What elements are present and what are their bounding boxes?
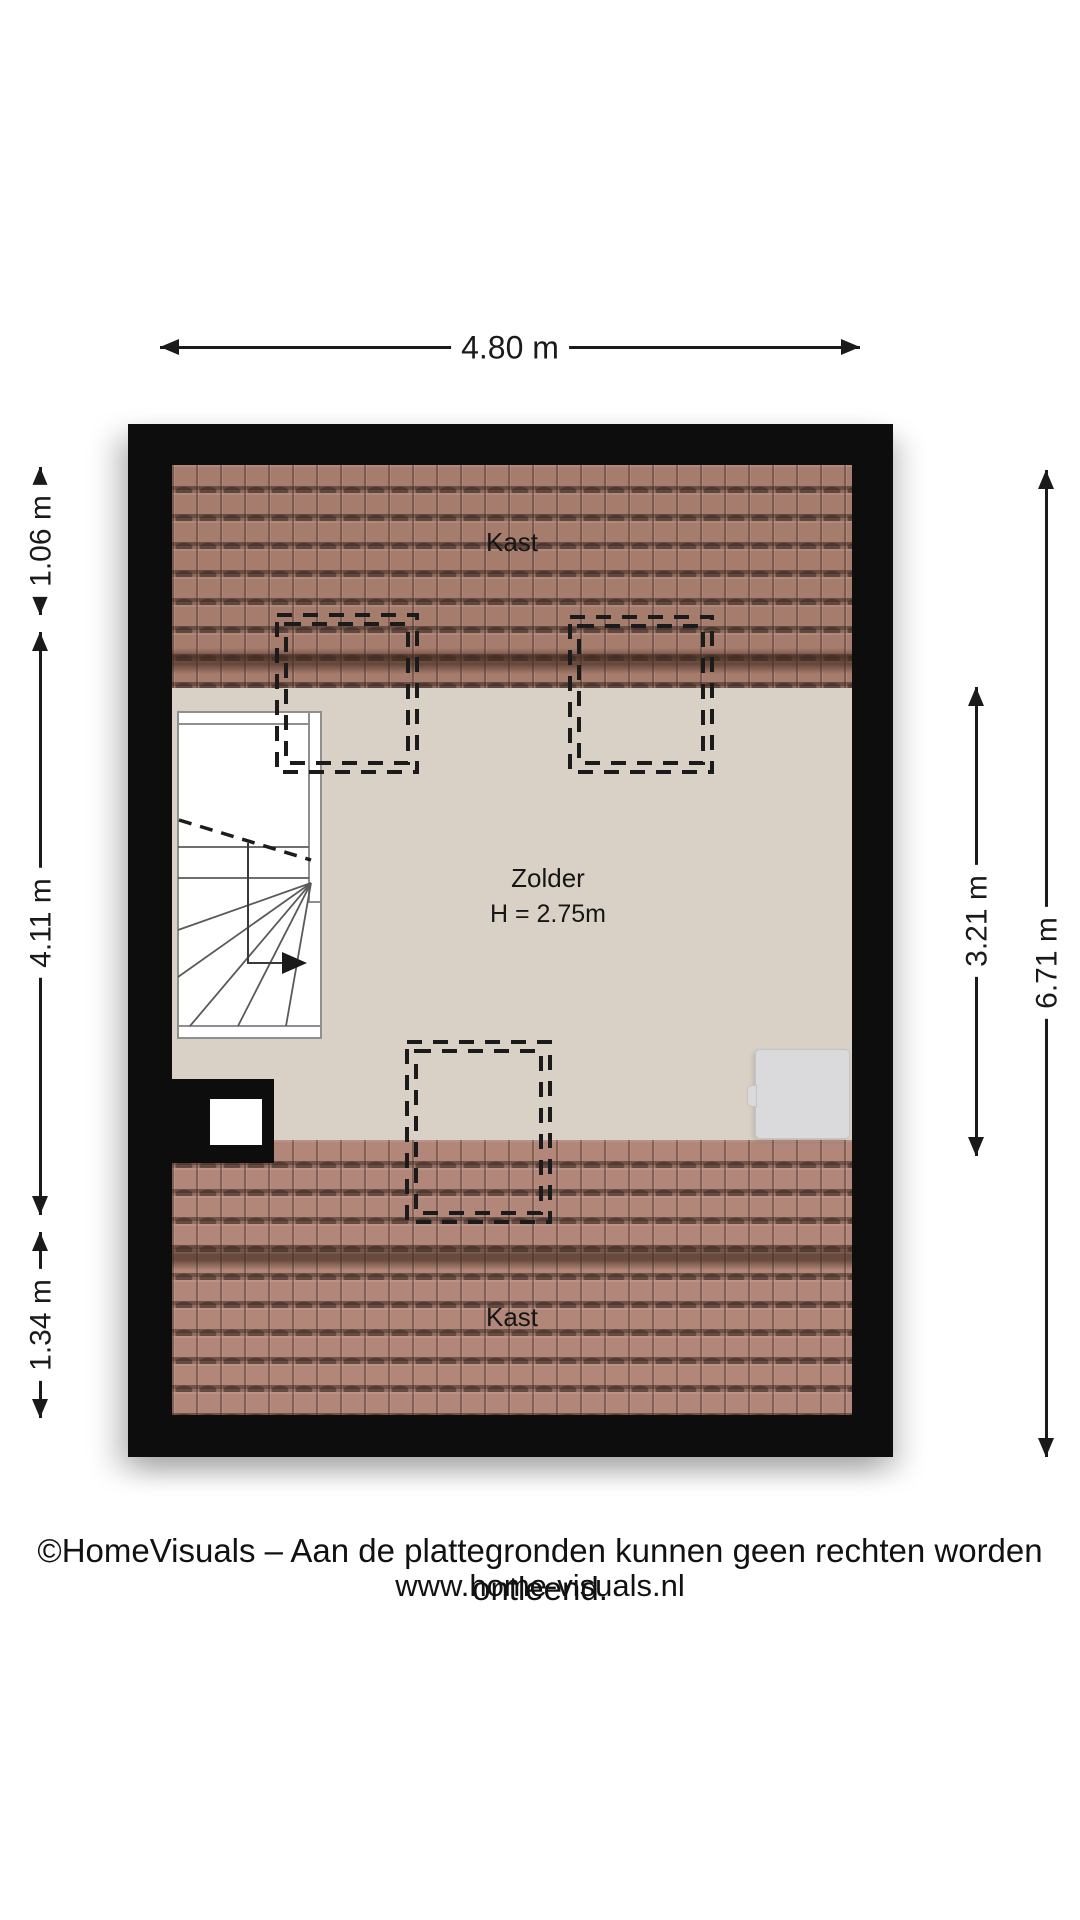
dormer-outline-bottom [407,1042,550,1222]
footer-website: www.home-visuals.nl [0,1568,1080,1604]
floorplan-interior: Kast Zolder H = 2.75m Kast [172,465,852,1415]
dimension-arrow-down-icon [968,1137,984,1156]
dimension-arrow-up-icon [1038,470,1054,489]
dimension-arrow-up-icon [968,687,984,706]
dimension-arrow-down-icon [1038,1438,1054,1457]
dimension-arrow-up-icon [32,467,48,486]
dormer-outlines [172,465,852,1415]
dimension-arrow-up-icon [32,632,48,651]
dimension-arrow-up-icon [32,1232,48,1251]
dimension-label: 4.11 m [23,868,60,978]
dimension-label-width: 4.80 m [451,328,569,367]
dimension-arrow-down-icon [32,1399,48,1418]
dimension-arrow-down-icon [32,1196,48,1215]
dimension-arrow-down-icon [32,596,48,615]
floorplan-page: 4.80 m 1.06 m 4.11 m 1.34 m 3.21 m 6.71 … [0,0,1080,1920]
floorplan-outline: Kast Zolder H = 2.75m Kast [128,424,893,1457]
dimension-label: 1.06 m [23,485,60,597]
dormer-outline-top-right [570,617,712,772]
dimension-label: 3.21 m [959,865,996,977]
dormer-outline-top-left [277,615,417,772]
dimension-arrow-left-icon [160,339,179,355]
dimension-label: 6.71 m [1029,907,1066,1019]
dimension-arrow-right-icon [841,339,860,355]
dimension-label: 1.34 m [23,1269,60,1381]
